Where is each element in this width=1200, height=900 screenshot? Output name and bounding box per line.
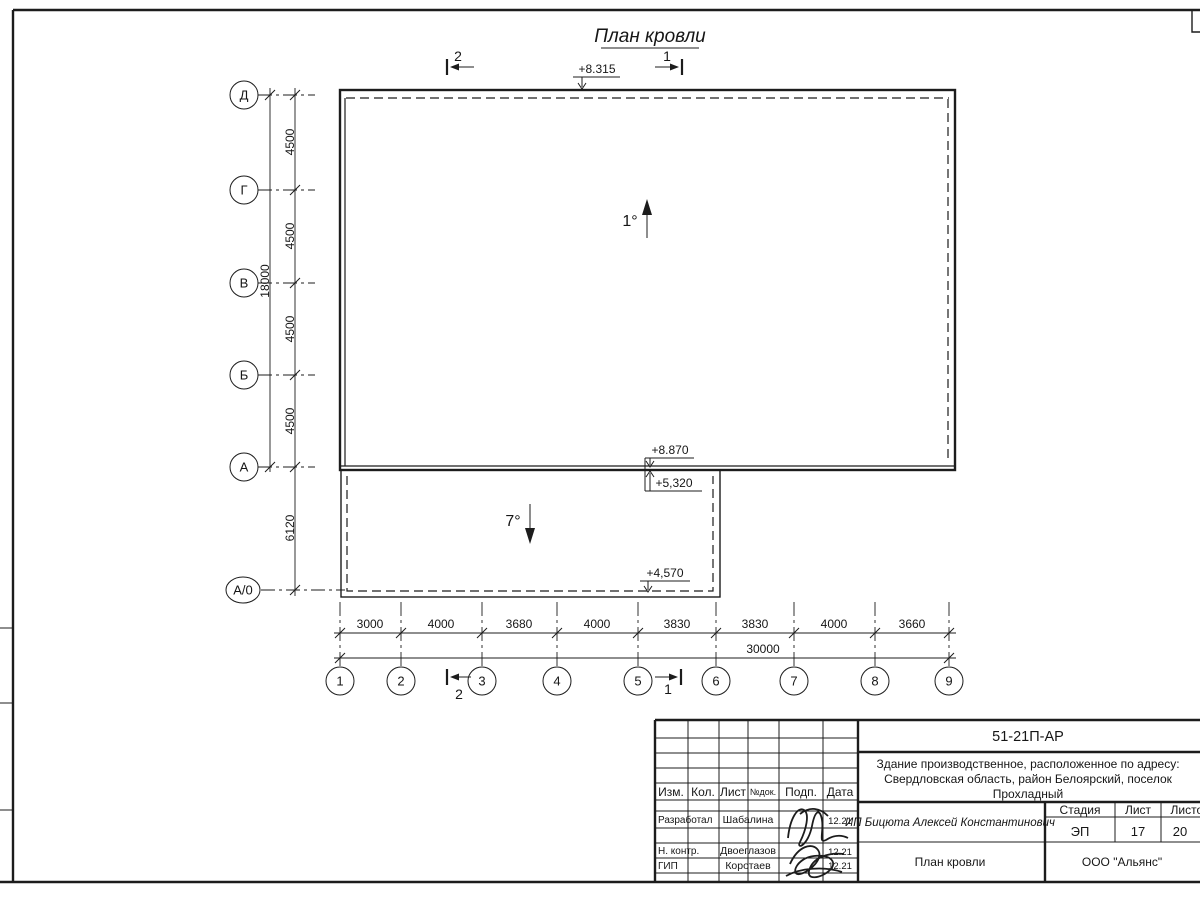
axis-label: 8 bbox=[871, 674, 878, 689]
elevation-annex-eave: +4,570 bbox=[640, 566, 690, 592]
dim-label: 4500 bbox=[283, 128, 297, 155]
stage-value: ЭП bbox=[1071, 824, 1090, 839]
section-mark-1-bottom: 1 bbox=[655, 669, 681, 697]
dim-label: 4000 bbox=[584, 617, 611, 631]
stage-col-header: Стадия bbox=[1060, 803, 1101, 817]
role-name: Коротаев bbox=[725, 860, 771, 872]
axis-label: 4 bbox=[553, 674, 560, 689]
sheet-number: 17 bbox=[1131, 824, 1145, 839]
section-1-label: 1 bbox=[664, 681, 672, 697]
left-dimension-lines: 4500 4500 4500 4500 6120 18000 bbox=[258, 88, 300, 596]
elevation-main-eave-label: +8.870 bbox=[651, 443, 688, 457]
dim-label: 4500 bbox=[283, 222, 297, 249]
section-mark-1-top: 1 bbox=[655, 48, 682, 75]
axis-label: А/0 bbox=[233, 583, 253, 598]
section-mark-2-bottom: 2 bbox=[447, 669, 471, 702]
stamp-col-header: Подп. bbox=[785, 785, 817, 799]
dim-label: 3680 bbox=[506, 617, 533, 631]
elevation-annex-top: +5,320 bbox=[645, 458, 702, 491]
main-slope-mark: 1° bbox=[622, 199, 652, 238]
elevation-roof-top-label: +8.315 bbox=[578, 62, 615, 76]
role-name: Двоеглазов bbox=[720, 845, 776, 857]
elevation-annex-eave-label: +4,570 bbox=[646, 566, 683, 580]
company-name: ООО "Альянс" bbox=[1082, 855, 1162, 869]
bottom-axis-grid: 1 2 3 4 5 6 7 8 9 bbox=[326, 602, 963, 695]
stamp-col-header: №док. bbox=[750, 787, 776, 797]
stamp-col-header: Изм. bbox=[658, 785, 684, 799]
section-2-label: 2 bbox=[455, 686, 463, 702]
dim-label: 3830 bbox=[664, 617, 691, 631]
title-block: Изм. Кол. Лист №док. Подп. Дата Разработ… bbox=[655, 720, 1200, 882]
section-1-label: 1 bbox=[663, 48, 671, 64]
axis-label: Г bbox=[240, 183, 247, 198]
frame-corner-box bbox=[1192, 10, 1200, 32]
left-arrow-icon bbox=[450, 64, 459, 71]
object-description-line: Здание производственное, расположенное п… bbox=[876, 757, 1179, 771]
drawing-title: План кровли bbox=[594, 26, 706, 47]
client-name: ИП Бицюта Алексей Константинович bbox=[845, 817, 1055, 829]
axis-label: 6 bbox=[712, 674, 719, 689]
axis-label: Б bbox=[240, 368, 249, 383]
axis-label: 3 bbox=[478, 674, 485, 689]
right-arrow-icon bbox=[670, 64, 679, 71]
signature-shabalina bbox=[788, 809, 848, 846]
role-label: Н. контр. bbox=[658, 846, 699, 857]
dim-label: 4500 bbox=[283, 315, 297, 342]
main-slope-arrow-icon bbox=[642, 199, 652, 215]
annex-slope-mark: 7° bbox=[505, 504, 535, 544]
axis-label: В bbox=[240, 276, 249, 291]
axis-label: 2 bbox=[397, 674, 404, 689]
dim-label: 4000 bbox=[821, 617, 848, 631]
axis-label: 1 bbox=[336, 674, 343, 689]
stamp-col-header: Лист bbox=[720, 785, 747, 799]
roof-plan-drawing: План кровли 1° 7° +8.315 +8.870 +5,32 bbox=[0, 0, 1200, 900]
elevation-roof-top: +8.315 bbox=[573, 62, 620, 89]
axis-stubs bbox=[340, 602, 949, 667]
stage-col-header: Листов bbox=[1171, 803, 1200, 817]
left-arrow-icon bbox=[450, 674, 459, 681]
role-label: Разработал bbox=[658, 814, 713, 826]
main-roof-outline bbox=[340, 90, 955, 470]
main-slope-label: 1° bbox=[622, 213, 637, 230]
bottom-dimension-lines: 3000 4000 3680 4000 3830 3830 4000 3660 … bbox=[334, 617, 956, 663]
role-label: ГИП bbox=[658, 861, 678, 872]
dim-label-overall: 18000 bbox=[258, 264, 272, 298]
elevation-annex-top-label: +5,320 bbox=[655, 476, 692, 490]
sheets-total: 20 bbox=[1173, 824, 1187, 839]
role-date: 12.21 bbox=[828, 847, 852, 858]
object-description-line: Прохладный bbox=[993, 787, 1063, 801]
drawing-sheet: План кровли 1° 7° +8.315 +8.870 +5,32 bbox=[0, 0, 1200, 900]
axis-label: Д bbox=[240, 88, 249, 103]
axis-label: 9 bbox=[945, 674, 952, 689]
dim-label: 4000 bbox=[428, 617, 455, 631]
section-mark-2-top: 2 bbox=[447, 48, 474, 75]
sheet-title: План кровли bbox=[915, 855, 986, 869]
axis-label: 7 bbox=[790, 674, 797, 689]
axis-label: 5 bbox=[634, 674, 641, 689]
stamp-col-header: Кол. bbox=[691, 785, 715, 799]
dim-label: 3000 bbox=[357, 617, 384, 631]
dim-label-overall: 30000 bbox=[746, 642, 780, 656]
document-number: 51-21П-АР bbox=[992, 729, 1064, 745]
dim-label: 3830 bbox=[742, 617, 769, 631]
annex-slope-label: 7° bbox=[505, 513, 520, 530]
elevation-main-eave: +8.870 bbox=[645, 443, 694, 467]
role-name: Шабалина bbox=[723, 814, 774, 826]
axis-label: А bbox=[240, 460, 249, 475]
stamp-col-header: Дата bbox=[827, 785, 854, 799]
dim-label: 3660 bbox=[899, 617, 926, 631]
dim-label: 6120 bbox=[283, 514, 297, 541]
annex-slope-arrow-icon bbox=[525, 528, 535, 544]
object-description-line: Свердловская область, район Белоярский, … bbox=[884, 772, 1173, 786]
stage-col-header: Лист bbox=[1125, 803, 1152, 817]
right-arrow-icon bbox=[669, 674, 678, 681]
dim-label: 4500 bbox=[283, 407, 297, 434]
section-2-label: 2 bbox=[454, 48, 462, 64]
